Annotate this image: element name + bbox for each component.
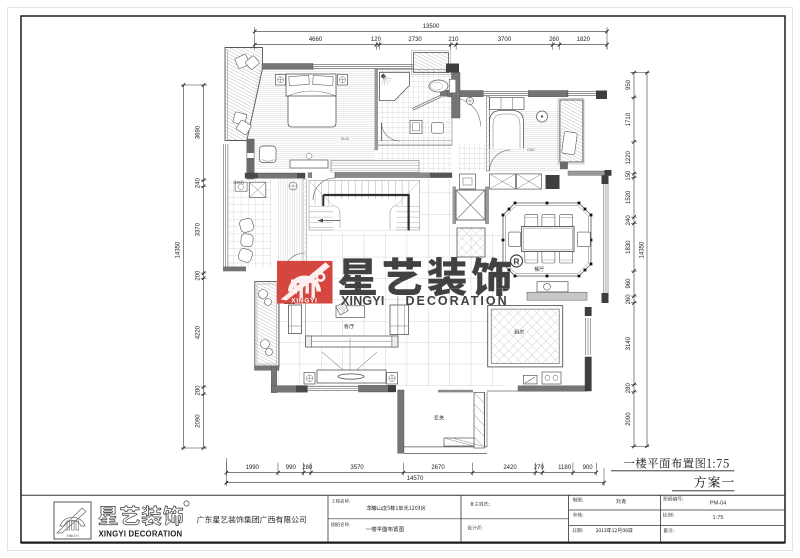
svg-text:PM-04: PM-04 — [710, 500, 726, 506]
svg-text:13500: 13500 — [423, 24, 440, 30]
svg-text:280: 280 — [195, 385, 201, 396]
svg-text:XINGYI: XINGYI — [291, 298, 317, 305]
svg-text:1830: 1830 — [626, 240, 632, 254]
svg-text:DL/D: DL/D — [341, 137, 349, 141]
svg-text:120: 120 — [371, 37, 382, 43]
svg-text:14350: 14350 — [176, 241, 182, 258]
svg-text:3690: 3690 — [195, 125, 201, 139]
svg-text:900: 900 — [583, 465, 594, 471]
svg-text:960: 960 — [626, 278, 632, 289]
svg-text:200: 200 — [195, 270, 201, 281]
svg-text:950: 950 — [626, 79, 632, 90]
svg-text:240: 240 — [626, 215, 632, 226]
svg-text:1180: 1180 — [558, 465, 572, 471]
svg-text:R: R — [513, 256, 519, 266]
svg-text:2090: 2090 — [626, 412, 632, 426]
svg-text:DUD: DUD — [527, 148, 535, 152]
svg-text:1:75: 1:75 — [713, 515, 724, 521]
svg-text:3570: 3570 — [350, 465, 364, 471]
svg-text:990: 990 — [286, 465, 297, 471]
svg-text:3140: 3140 — [626, 336, 632, 350]
svg-text:XINGYI DECORATION: XINGYI DECORATION — [99, 530, 183, 539]
svg-text:4660: 4660 — [309, 37, 323, 43]
svg-text:150: 150 — [626, 170, 632, 181]
svg-text:2090: 2090 — [195, 414, 201, 428]
svg-text:210: 210 — [448, 37, 459, 43]
svg-text:2670: 2670 — [431, 465, 445, 471]
svg-text:14570: 14570 — [407, 476, 424, 482]
svg-text:1220: 1220 — [626, 150, 632, 164]
svg-text:260: 260 — [549, 37, 560, 43]
svg-text:3370: 3370 — [195, 222, 201, 236]
svg-text:XINGYI: XINGYI — [66, 534, 78, 538]
svg-text:1520: 1520 — [626, 190, 632, 204]
svg-text:3700: 3700 — [498, 37, 512, 43]
svg-text:240: 240 — [195, 178, 201, 189]
svg-text:2730: 2730 — [408, 37, 422, 43]
svg-text:1990: 1990 — [246, 465, 260, 471]
svg-text:2420: 2420 — [503, 465, 517, 471]
svg-text:260: 260 — [626, 294, 632, 305]
svg-text:1820: 1820 — [577, 37, 591, 43]
svg-text:DECORATION: DECORATION — [406, 294, 509, 308]
svg-text:1710: 1710 — [626, 112, 632, 126]
svg-text:280: 280 — [626, 383, 632, 394]
svg-text:280: 280 — [302, 465, 313, 471]
svg-text:14350: 14350 — [640, 241, 646, 258]
svg-text:XINGYI: XINGYI — [341, 294, 385, 308]
svg-text:270: 270 — [534, 465, 545, 471]
svg-text:4220: 4220 — [195, 325, 201, 339]
